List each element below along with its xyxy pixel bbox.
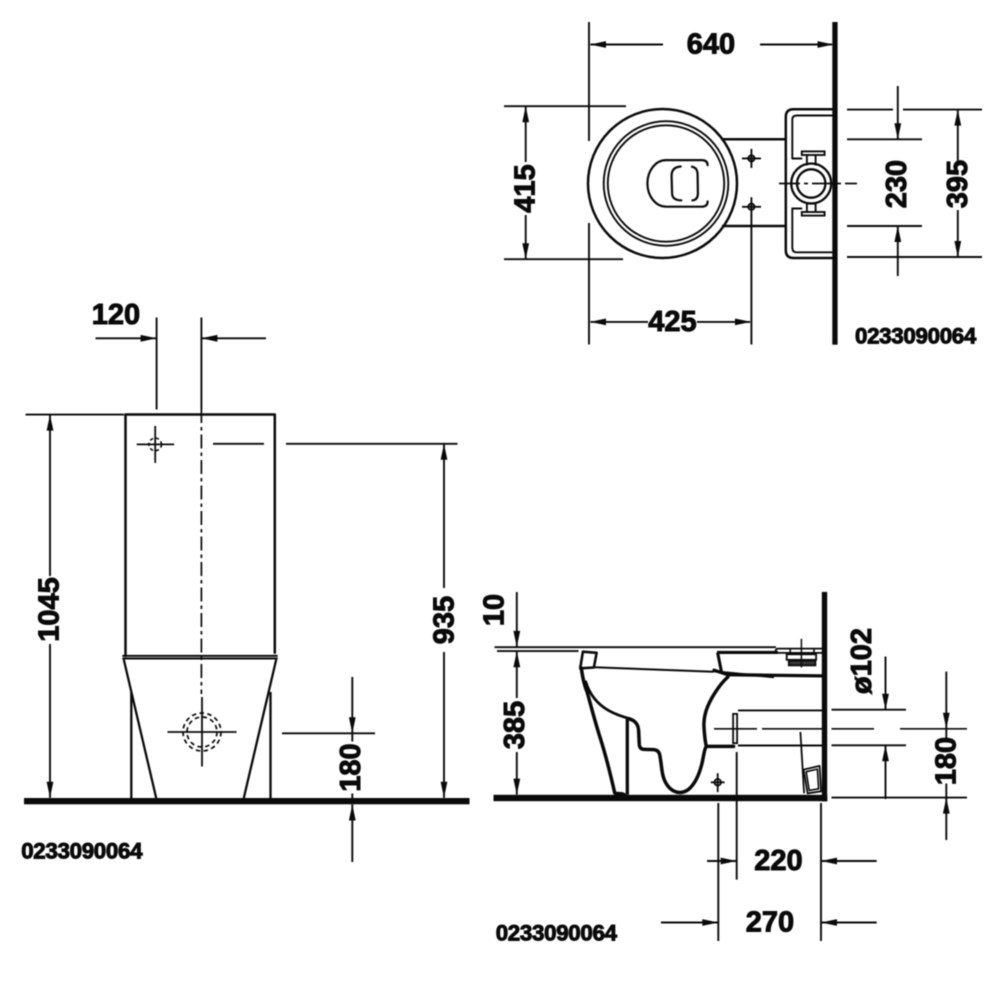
- svg-text:935: 935: [429, 596, 461, 644]
- svg-text:0233090064: 0233090064: [855, 324, 977, 349]
- svg-text:415: 415: [510, 164, 542, 212]
- svg-text:395: 395: [942, 160, 974, 208]
- svg-text:425: 425: [648, 306, 696, 338]
- svg-text:180: 180: [335, 743, 367, 791]
- svg-text:640: 640: [687, 29, 735, 61]
- svg-text:120: 120: [92, 299, 140, 331]
- svg-text:270: 270: [746, 907, 794, 939]
- svg-text:220: 220: [754, 845, 802, 877]
- svg-text:ø102: ø102: [846, 628, 878, 694]
- svg-text:230: 230: [881, 160, 913, 208]
- svg-text:180: 180: [930, 737, 962, 785]
- svg-text:1045: 1045: [34, 577, 66, 642]
- svg-text:0233090064: 0233090064: [21, 838, 143, 863]
- svg-text:10: 10: [479, 594, 511, 626]
- svg-text:385: 385: [499, 701, 531, 749]
- svg-text:0233090064: 0233090064: [496, 920, 618, 945]
